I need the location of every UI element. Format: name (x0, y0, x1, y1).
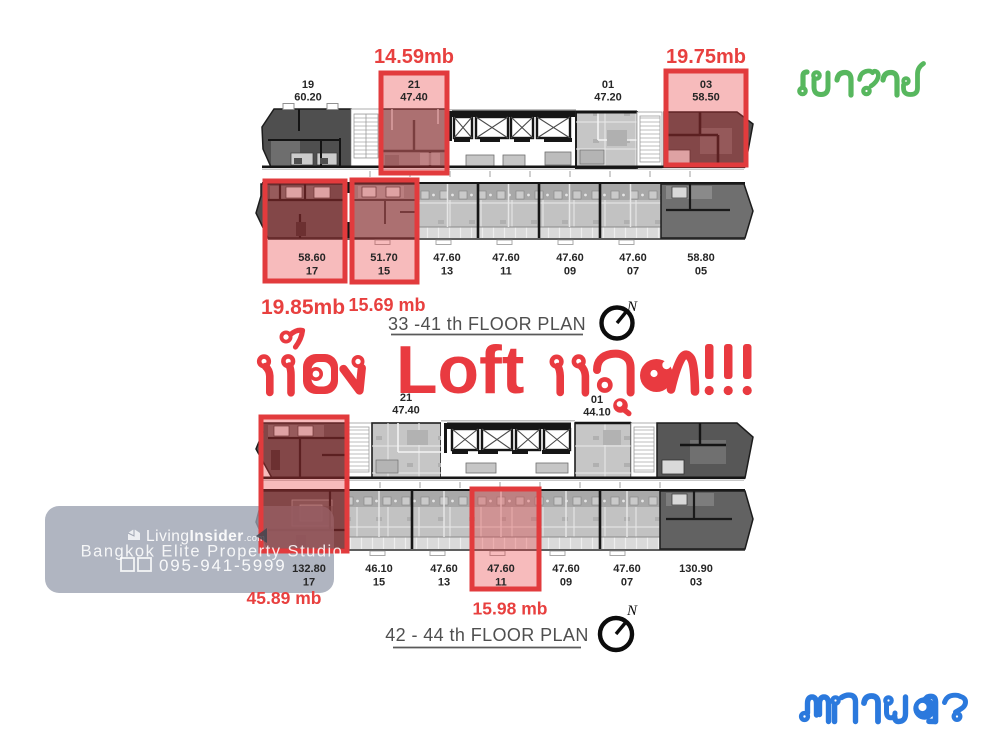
svg-text:13: 13 (438, 577, 450, 589)
svg-text:42 - 44 th FLOOR PLAN: 42 - 44 th FLOOR PLAN (385, 625, 588, 645)
svg-text:132.80: 132.80 (292, 563, 326, 575)
svg-text:N: N (626, 603, 638, 619)
svg-text:15.98 mb: 15.98 mb (473, 599, 548, 619)
svg-text:07: 07 (621, 577, 633, 589)
svg-text:N: N (626, 299, 638, 315)
svg-text:21: 21 (408, 79, 420, 91)
svg-text:11: 11 (500, 266, 512, 278)
svg-text:01: 01 (602, 79, 614, 91)
svg-text:09: 09 (564, 266, 576, 278)
svg-text:01: 01 (591, 394, 603, 406)
svg-text:47.60: 47.60 (552, 563, 580, 575)
svg-text:47.60: 47.60 (430, 563, 458, 575)
svg-text:19: 19 (302, 79, 314, 91)
svg-text:58.60: 58.60 (298, 252, 326, 264)
svg-text:07: 07 (627, 266, 639, 278)
svg-text:47.40: 47.40 (400, 92, 428, 104)
svg-text:03: 03 (690, 577, 702, 589)
svg-text:47.60: 47.60 (619, 252, 647, 264)
svg-text:33 -41 th FLOOR PLAN: 33 -41 th FLOOR PLAN (388, 314, 586, 334)
svg-text:Loft: Loft (396, 332, 524, 408)
svg-text:47.60: 47.60 (433, 252, 461, 264)
svg-text:03: 03 (700, 79, 712, 91)
svg-text:58.50: 58.50 (692, 92, 720, 104)
svg-text:09: 09 (560, 577, 572, 589)
svg-text:44.10: 44.10 (583, 407, 611, 419)
svg-text:19.75mb: 19.75mb (666, 46, 746, 68)
svg-text:60.20: 60.20 (294, 92, 322, 104)
svg-text:11: 11 (495, 577, 507, 589)
svg-text:15: 15 (378, 266, 390, 278)
svg-text:47.20: 47.20 (594, 92, 622, 104)
svg-text:17: 17 (303, 577, 315, 589)
svg-text:46.10: 46.10 (365, 563, 393, 575)
svg-text:47.60: 47.60 (492, 252, 520, 264)
svg-text:14.59mb: 14.59mb (374, 46, 454, 68)
svg-text:13: 13 (441, 266, 453, 278)
svg-text:51.70: 51.70 (370, 252, 398, 264)
svg-text:47.60: 47.60 (613, 563, 641, 575)
svg-text:47.60: 47.60 (556, 252, 584, 264)
svg-text:15.69 mb: 15.69 mb (348, 295, 425, 315)
svg-text:47.60: 47.60 (487, 563, 515, 575)
svg-text:45.89 mb: 45.89 mb (247, 588, 322, 608)
svg-text:15: 15 (373, 577, 385, 589)
svg-text:095-941-5999: 095-941-5999 (159, 556, 286, 575)
svg-text:17: 17 (306, 266, 318, 278)
svg-text:19.85mb: 19.85mb (261, 296, 345, 319)
svg-text:05: 05 (695, 266, 707, 278)
svg-text:58.80: 58.80 (687, 252, 715, 264)
svg-text:130.90: 130.90 (679, 563, 713, 575)
